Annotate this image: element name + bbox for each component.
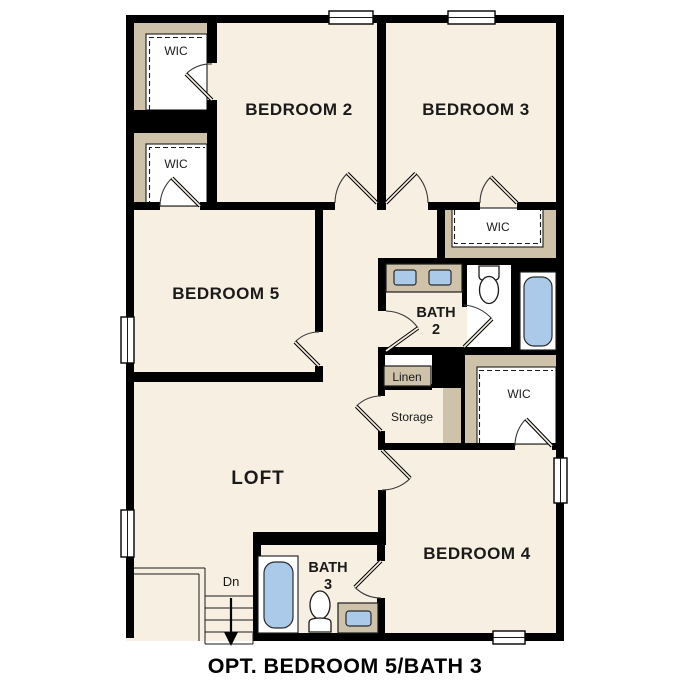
- wic-bedroom5-label: WIC: [164, 157, 188, 171]
- bath2-sink-right: [429, 270, 451, 285]
- loft-label: LOFT: [231, 468, 285, 489]
- floor-plan-page: BEDROOM 2 BEDROOM 3 BEDROOM 5 BEDROOM 4 …: [0, 0, 687, 687]
- plan-caption: OPT. BEDROOM 5/BATH 3: [208, 654, 482, 678]
- bedroom3-label: BEDROOM 3: [422, 100, 529, 119]
- linen-label: Linen: [392, 370, 421, 384]
- floor-plan: BEDROOM 2 BEDROOM 3 BEDROOM 5 BEDROOM 4 …: [0, 0, 687, 687]
- bath2-label-line2: 2: [432, 322, 440, 338]
- window-bedroom4-bottom: [493, 631, 525, 644]
- bath3-bathtub: [264, 562, 293, 628]
- bedroom2-label: BEDROOM 2: [245, 100, 352, 119]
- storage-label: Storage: [391, 410, 433, 424]
- bath3-label-line1: BATH: [308, 560, 347, 576]
- window-loft: [121, 510, 134, 557]
- bath3-label-line2: 3: [324, 577, 332, 593]
- wic-bedroom4-interior: [477, 367, 556, 444]
- bath2-bathtub: [524, 277, 552, 346]
- bath2-label-line1: BATH: [416, 305, 455, 321]
- bath3-sink: [346, 611, 371, 626]
- window-bedroom2: [329, 11, 373, 24]
- bedroom4-label: BEDROOM 4: [423, 544, 531, 563]
- bath3-toilet: [309, 591, 331, 632]
- wic-bedroom4-label: WIC: [507, 387, 531, 401]
- bath2-toilet: [479, 266, 499, 304]
- bedroom5-label: BEDROOM 5: [172, 284, 279, 303]
- window-bedroom4-right: [554, 458, 567, 503]
- wic-bedroom2-label: WIC: [164, 44, 188, 58]
- stairs-down-label: Dn: [223, 574, 240, 589]
- wic-bedroom5-interior: [146, 144, 207, 206]
- wic-bedroom3-label: WIC: [486, 220, 510, 234]
- window-bedroom5: [121, 317, 134, 363]
- bath2-sink-left: [394, 270, 416, 285]
- window-bedroom3: [448, 11, 495, 24]
